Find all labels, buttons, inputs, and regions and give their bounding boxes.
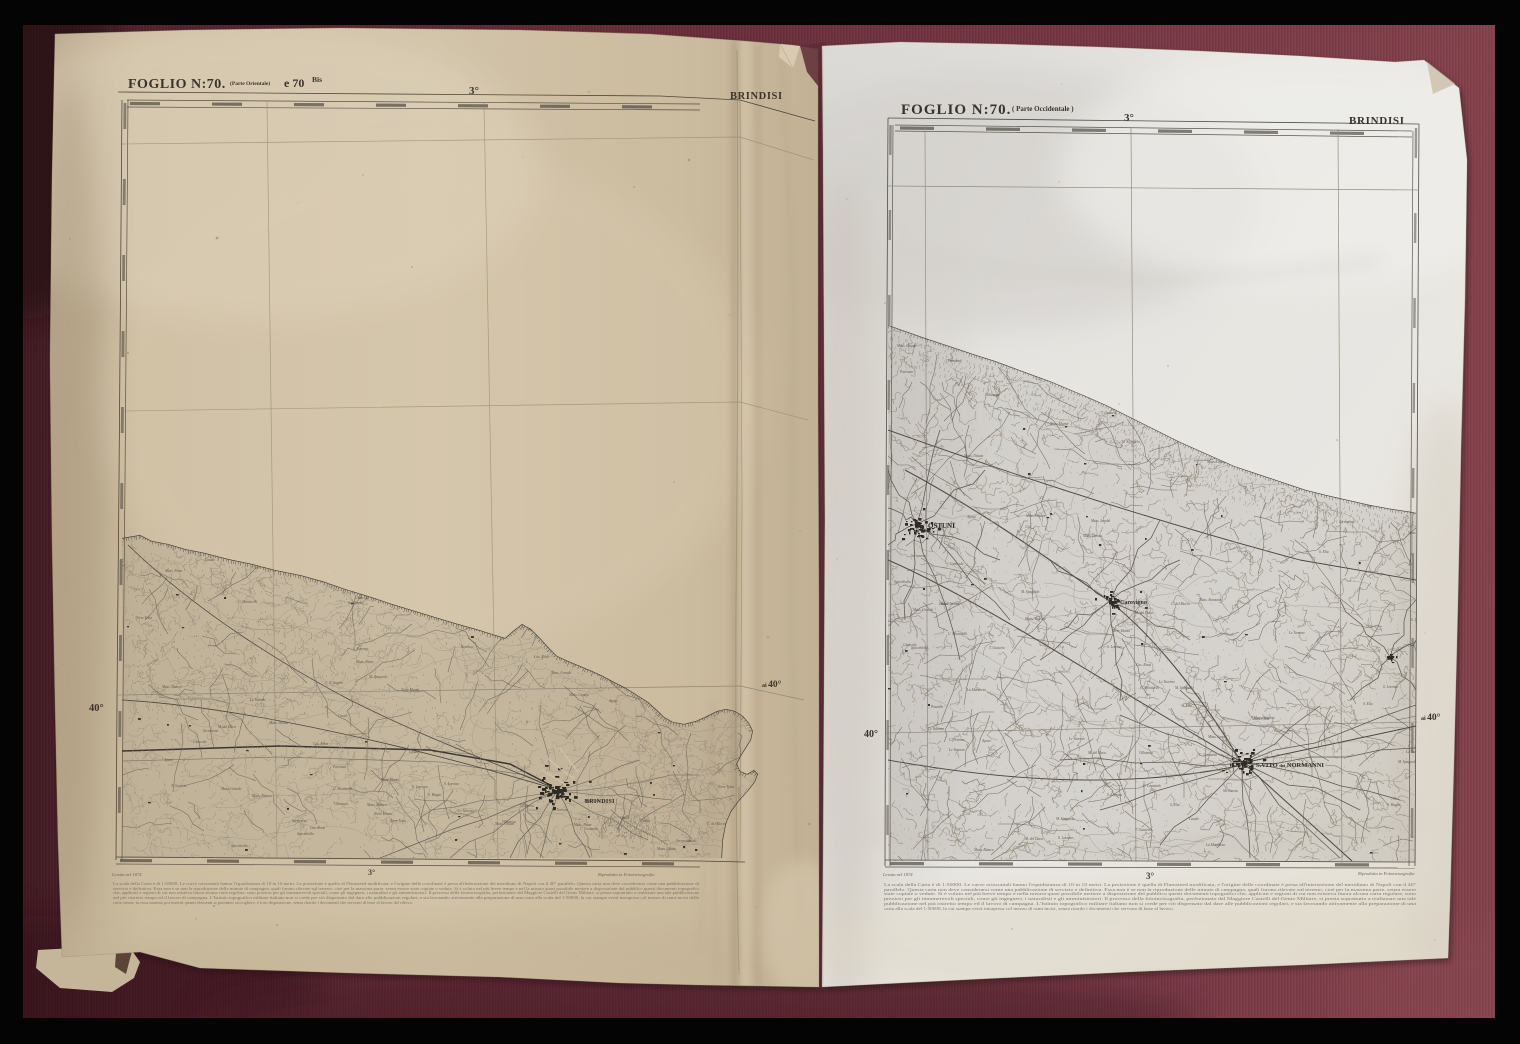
- svg-text:Casale: Casale: [1189, 817, 1199, 821]
- svg-text:C. del Riccio: C. del Riccio: [1171, 602, 1190, 606]
- svg-text:FOGLIO N:70.: FOGLIO N:70.: [128, 77, 226, 92]
- svg-text:Serranova: Serranova: [292, 819, 307, 823]
- svg-text:Mass. Bianca: Mass. Bianca: [161, 685, 182, 689]
- svg-text:Mass. Pezze: Mass. Pezze: [355, 660, 374, 664]
- svg-text:Mass. Bianca: Mass. Bianca: [366, 803, 387, 807]
- svg-text:S. Biagio: S. Biagio: [428, 793, 441, 797]
- svg-text:M. Spagnolo: M. Spagnolo: [1174, 686, 1194, 690]
- svg-text:Mass. Grande: Mass. Grande: [550, 671, 572, 675]
- svg-text:Carovigno: Carovigno: [1120, 600, 1147, 606]
- svg-text:3°: 3°: [1146, 871, 1155, 881]
- svg-text:Bis: Bis: [312, 75, 322, 84]
- svg-text:Serranova: Serranova: [348, 601, 363, 605]
- svg-text:C. Monticelli: C. Monticelli: [238, 600, 257, 604]
- svg-text:Casale: Casale: [338, 714, 348, 718]
- svg-text:Mass. Lamia: Mass. Lamia: [656, 847, 676, 851]
- svg-text:Mass. Ottava: Mass. Ottava: [896, 344, 916, 348]
- svg-text:Mass. Stanzano: Mass. Stanzano: [1198, 598, 1222, 602]
- svg-text:Pozzella: Pozzella: [930, 705, 943, 709]
- svg-text:Torre Testa: Torre Testa: [390, 819, 406, 823]
- svg-text:T. Guaceto: T. Guaceto: [171, 784, 187, 788]
- svg-text:Le Taverne: Le Taverne: [249, 698, 266, 702]
- svg-text:OSTUNI: OSTUNI: [928, 522, 955, 530]
- svg-text:(Parte Orientale): (Parte Orientale): [230, 80, 270, 87]
- svg-text:BRINDISI: BRINDISI: [1349, 115, 1405, 127]
- svg-text:Mass. Bianca: Mass. Bianca: [973, 848, 994, 852]
- svg-text:S. Lorenzo: S. Lorenzo: [444, 782, 459, 786]
- svg-text:Specchiolla: Specchiolla: [894, 580, 911, 584]
- svg-text:S. Lorenzo: S. Lorenzo: [412, 785, 427, 789]
- svg-text:Specchiolla: Specchiolla: [231, 844, 248, 848]
- svg-text:M. del Duca: M. del Duca: [217, 725, 236, 729]
- svg-text:C. Leonardo: C. Leonardo: [1143, 784, 1161, 788]
- svg-text:( Parte Occidentale ): ( Parte Occidentale ): [1012, 105, 1074, 113]
- svg-text:C. S. Angelo: C. S. Angelo: [1122, 440, 1140, 444]
- svg-text:M. Spagnolo: M. Spagnolo: [1397, 760, 1417, 764]
- svg-text:Apani: Apani: [163, 758, 173, 762]
- svg-text:S. Lorenzo: S. Lorenzo: [1107, 793, 1122, 797]
- svg-text:La Marchesa: La Marchesa: [1205, 843, 1225, 847]
- svg-text:Torre Mozza: Torre Mozza: [1112, 629, 1130, 633]
- svg-text:Torre Testa: Torre Testa: [136, 616, 152, 620]
- svg-text:M. del Duca: M. del Duca: [1024, 837, 1043, 841]
- svg-text:C. Leonardo: C. Leonardo: [580, 827, 598, 831]
- svg-text:e 70: e 70: [284, 76, 304, 90]
- svg-text:3°: 3°: [469, 85, 479, 97]
- svg-text:T. Guaceto: T. Guaceto: [1101, 411, 1117, 415]
- svg-text:C. Leonardo: C. Leonardo: [1199, 753, 1217, 757]
- svg-text:T. Guaceto: T. Guaceto: [1135, 828, 1151, 832]
- svg-text:C. Petrosa: C. Petrosa: [949, 738, 964, 742]
- svg-text:Levata nel 1874: Levata nel 1874: [111, 872, 142, 877]
- svg-text:S.VITO dei NORMANNI: S.VITO dei NORMANNI: [1256, 762, 1324, 769]
- svg-text:Apani: Apani: [966, 515, 976, 519]
- svg-text:Mass. Caputo: Mass. Caputo: [568, 693, 589, 697]
- svg-text:Le Taverne: Le Taverne: [927, 727, 944, 731]
- svg-text:Levata nel 1874: Levata nel 1874: [882, 872, 913, 877]
- svg-text:Torre Mozza: Torre Mozza: [401, 688, 419, 692]
- svg-text:S. Lorenzo: S. Lorenzo: [1107, 645, 1122, 649]
- svg-text:Villanova: Villanova: [985, 393, 999, 397]
- svg-text:Le Taverne: Le Taverne: [948, 748, 965, 752]
- svg-text:BRINDISI: BRINDISI: [730, 91, 783, 102]
- svg-text:Torre Mozza: Torre Mozza: [1050, 422, 1068, 426]
- svg-text:BRINDISI: BRINDISI: [585, 799, 615, 805]
- svg-text:Paretano: Paretano: [332, 765, 346, 769]
- svg-text:S. Elia: S. Elia: [1170, 803, 1180, 807]
- svg-text:C. del Riccio: C. del Riccio: [707, 822, 726, 826]
- svg-text:Mass. Incalzi: Mass. Incalzi: [268, 721, 288, 725]
- svg-text:Villanova: Villanova: [334, 802, 348, 806]
- svg-text:Casale: Casale: [409, 750, 419, 754]
- svg-text:S. Lorenzo: S. Lorenzo: [1383, 685, 1398, 689]
- svg-text:M. del Duca: M. del Duca: [1087, 751, 1106, 755]
- svg-text:Cas. Rossi: Cas. Rossi: [1136, 663, 1151, 667]
- svg-text:Torre Mozza: Torre Mozza: [381, 778, 399, 782]
- svg-text:Le Taverne: Le Taverne: [457, 809, 474, 813]
- svg-text:S. Lorenzo: S. Lorenzo: [353, 647, 368, 651]
- svg-text:Mass. Lamia: Mass. Lamia: [1082, 534, 1102, 538]
- svg-text:Mass. Pezze: Mass. Pezze: [1251, 717, 1270, 721]
- svg-text:S. Lorenzo: S. Lorenzo: [1058, 836, 1073, 840]
- svg-text:40°: 40°: [864, 729, 878, 740]
- svg-text:Casale: Casale: [620, 816, 630, 820]
- svg-text:C. Monticelli: C. Monticelli: [333, 787, 352, 791]
- svg-text:3°: 3°: [1124, 112, 1134, 124]
- svg-text:Paretano: Paretano: [947, 359, 961, 363]
- svg-text:Le Taverne: Le Taverne: [1068, 737, 1085, 741]
- svg-text:S. Elia: S. Elia: [1182, 704, 1192, 708]
- svg-text:M. Spagnolo: M. Spagnolo: [368, 675, 388, 679]
- svg-text:Serranova: Serranova: [1223, 789, 1238, 793]
- svg-text:S. Elia: S. Elia: [1363, 702, 1373, 706]
- svg-text:Mass. Vecchia: Mass. Vecchia: [1024, 617, 1046, 621]
- svg-text:Mass. Ottava: Mass. Ottava: [494, 822, 514, 826]
- svg-text:Serranova: Serranova: [203, 729, 218, 733]
- svg-text:Mass. Pezze: Mass. Pezze: [164, 569, 183, 573]
- svg-text:40°: 40°: [89, 703, 104, 714]
- svg-text:FOGLIO N:70.: FOGLIO N:70.: [901, 102, 1011, 118]
- svg-text:Mass. Lamia: Mass. Lamia: [1207, 735, 1227, 739]
- svg-text:La Marchesa: La Marchesa: [966, 688, 986, 692]
- svg-text:S. Biagio: S. Biagio: [1387, 803, 1400, 807]
- svg-text:Riprodotta in Fotoincisografia: Riprodotta in Fotoincisografia: [597, 872, 655, 877]
- svg-text:Torre Mozza: Torre Mozza: [374, 812, 392, 816]
- svg-text:Mass. Grande: Mass. Grande: [220, 787, 242, 791]
- svg-text:Giancola: Giancola: [193, 740, 207, 744]
- svg-text:C. Monticelli: C. Monticelli: [948, 632, 967, 636]
- svg-text:Paretano: Paretano: [899, 370, 913, 374]
- svg-text:Apani: Apani: [608, 699, 618, 703]
- svg-text:Mass. Bianca: Mass. Bianca: [251, 794, 272, 798]
- svg-text:Serranova: Serranova: [911, 554, 926, 558]
- svg-text:Restinco: Restinco: [460, 645, 474, 649]
- svg-text:Specchiolla: Specchiolla: [297, 832, 314, 836]
- svg-text:T. Guaceto: T. Guaceto: [989, 646, 1005, 650]
- svg-text:Specchiolla: Specchiolla: [911, 646, 928, 650]
- svg-text:Torre Testa: Torre Testa: [718, 785, 734, 789]
- svg-text:C. S. Angelo: C. S. Angelo: [325, 681, 343, 685]
- svg-text:Giancola: Giancola: [950, 562, 964, 566]
- svg-text:M. Spagnolo: M. Spagnolo: [1020, 590, 1040, 594]
- svg-text:Le Taverne: Le Taverne: [1158, 680, 1175, 684]
- svg-text:S. Elia: S. Elia: [1319, 550, 1329, 554]
- svg-text:Casale: Casale: [205, 558, 215, 562]
- svg-text:C. Monticelli: C. Monticelli: [1140, 686, 1159, 690]
- svg-text:Serranova: Serranova: [1339, 520, 1354, 524]
- svg-text:Apani: Apani: [981, 739, 991, 743]
- svg-text:Riprodotta in Fotoincisografia: Riprodotta in Fotoincisografia: [1357, 871, 1415, 876]
- svg-text:Cas. Rossi: Cas. Rossi: [534, 655, 549, 659]
- svg-text:M. del Duca: M. del Duca: [1134, 611, 1153, 615]
- svg-text:Mass. Incalzi: Mass. Incalzi: [1090, 519, 1110, 523]
- svg-text:Casale: Casale: [939, 602, 949, 606]
- svg-text:Mass. Ottava: Mass. Ottava: [1025, 514, 1045, 518]
- svg-text:Serranova: Serranova: [676, 839, 691, 843]
- svg-text:Casale: Casale: [641, 819, 651, 823]
- svg-text:Giancola: Giancola: [355, 596, 369, 600]
- svg-text:Mass. Grande: Mass. Grande: [912, 608, 934, 612]
- svg-text:Villanova: Villanova: [520, 804, 534, 808]
- svg-text:Mass. Ottava: Mass. Ottava: [963, 454, 983, 458]
- svg-text:Cas. Rossi: Cas. Rossi: [313, 742, 328, 746]
- svg-text:Villanova: Villanova: [1139, 751, 1153, 755]
- svg-text:Le Taverne: Le Taverne: [1288, 631, 1305, 635]
- svg-text:Le Taverne: Le Taverne: [551, 808, 568, 812]
- svg-text:M. Spagnolo: M. Spagnolo: [1055, 817, 1075, 821]
- svg-text:3°: 3°: [368, 868, 375, 877]
- svg-text:Cas. Rossi: Cas. Rossi: [310, 826, 325, 830]
